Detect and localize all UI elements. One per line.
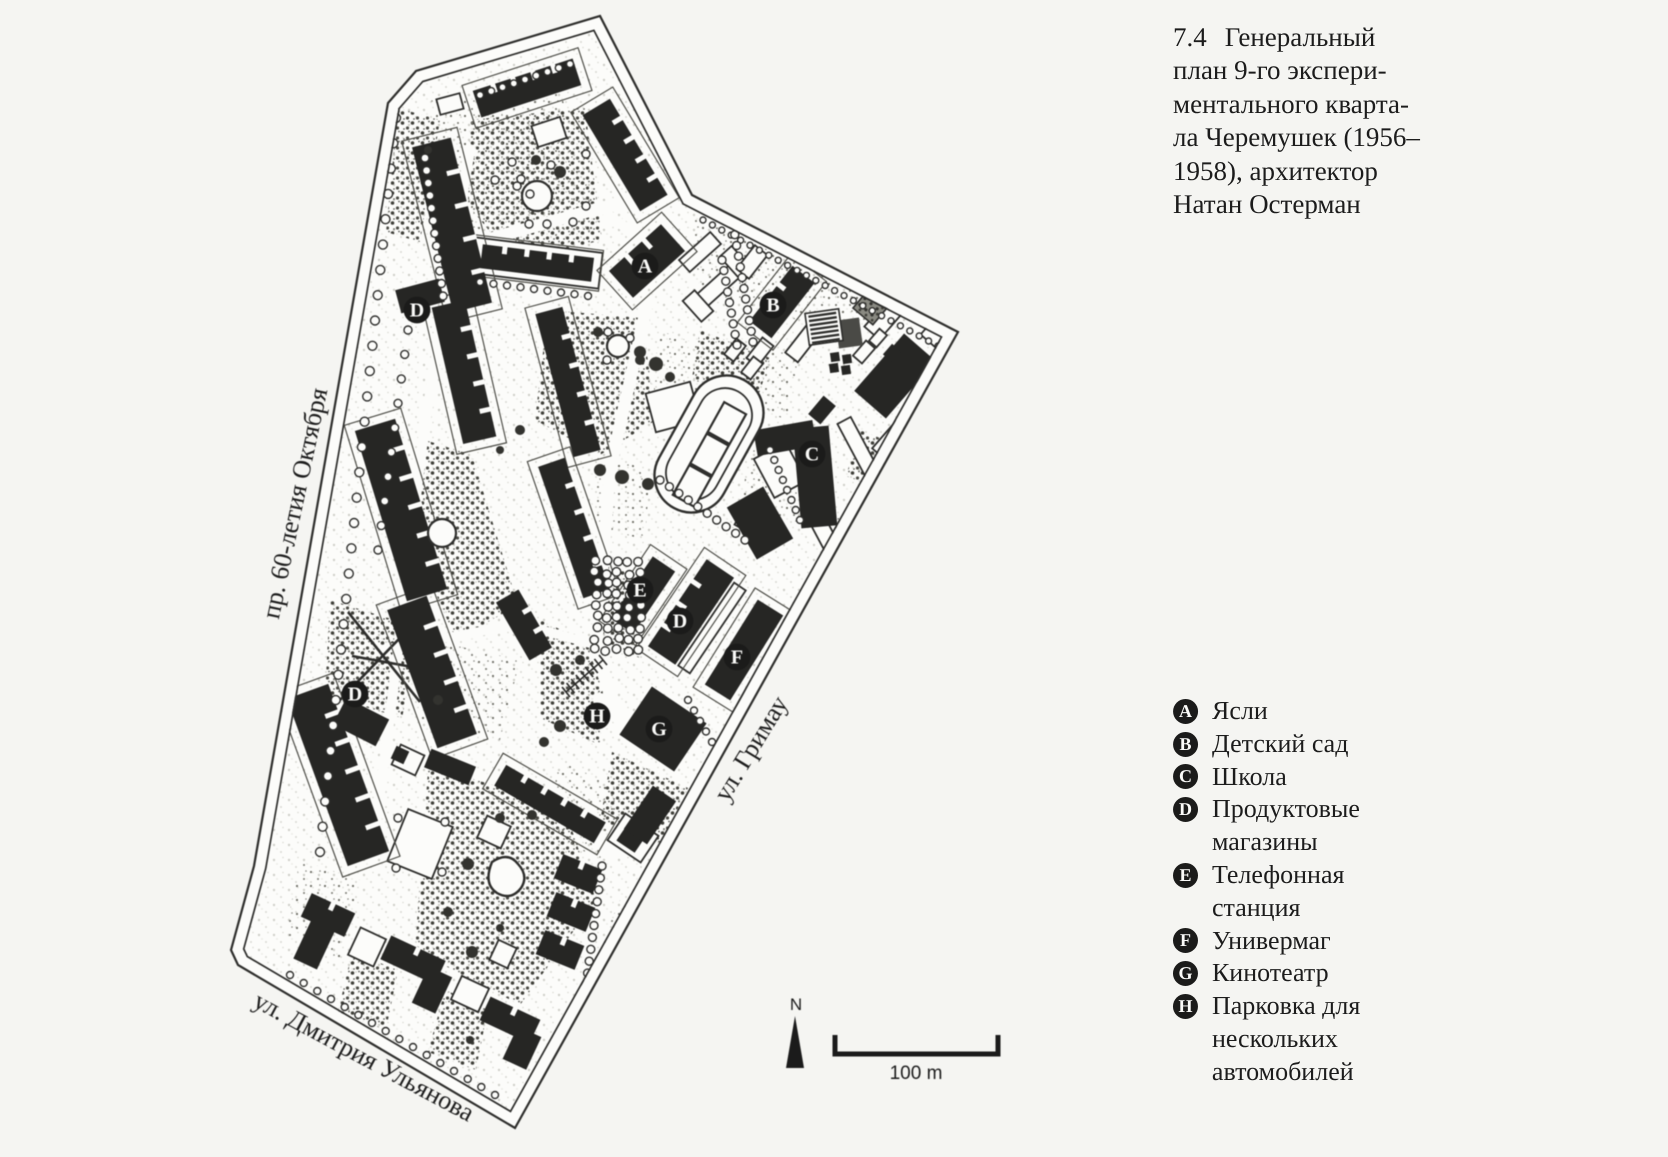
svg-text:G: G	[651, 719, 667, 741]
svg-text:D: D	[673, 611, 687, 633]
svg-text:100 m: 100 m	[890, 1063, 943, 1084]
svg-text:D: D	[348, 684, 362, 706]
svg-text:B: B	[766, 295, 779, 317]
svg-text:H: H	[589, 706, 605, 728]
svg-text:N: N	[790, 995, 802, 1014]
svg-text:E: E	[633, 580, 646, 602]
svg-text:F: F	[731, 647, 743, 669]
svg-text:D: D	[410, 300, 424, 322]
svg-text:A: A	[638, 256, 653, 278]
svg-text:C: C	[805, 444, 819, 466]
